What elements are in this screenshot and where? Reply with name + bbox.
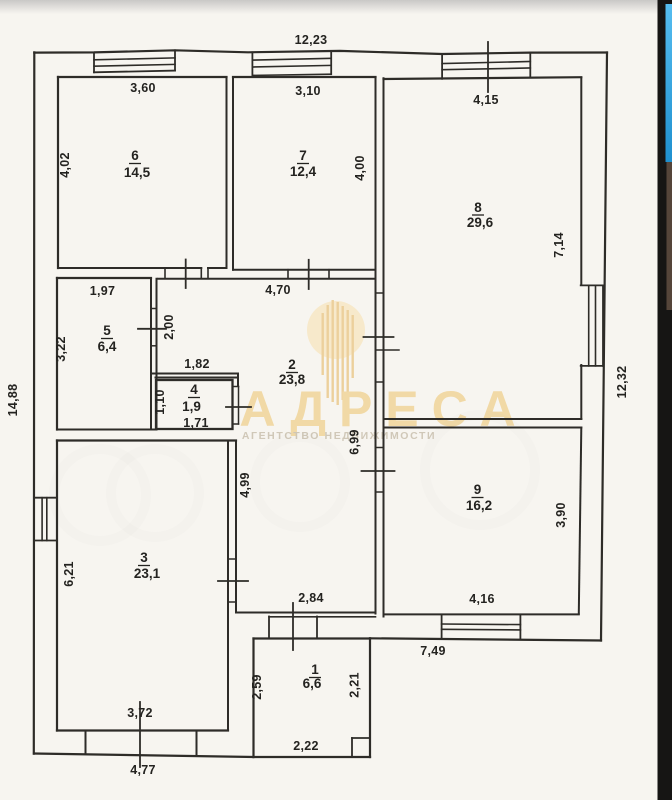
svg-text:4,99: 4,99 [238, 472, 252, 498]
svg-text:3,72: 3,72 [127, 706, 153, 720]
svg-text:2: 2 [288, 357, 296, 372]
svg-text:7,49: 7,49 [420, 644, 446, 658]
svg-text:6,99: 6,99 [348, 429, 362, 455]
svg-text:4,77: 4,77 [130, 763, 156, 777]
svg-text:14,5: 14,5 [124, 165, 151, 180]
svg-text:6,21: 6,21 [62, 561, 76, 587]
svg-text:5: 5 [103, 323, 111, 338]
svg-text:1: 1 [311, 662, 319, 677]
svg-text:2,21: 2,21 [348, 672, 362, 698]
svg-text:1,82: 1,82 [184, 357, 210, 371]
svg-text:8: 8 [474, 200, 482, 215]
svg-text:3,60: 3,60 [130, 81, 156, 95]
svg-text:4,15: 4,15 [473, 93, 499, 107]
svg-text:23,1: 23,1 [134, 566, 161, 581]
svg-text:3,90: 3,90 [554, 502, 568, 528]
svg-text:6: 6 [131, 148, 139, 163]
svg-text:6,4: 6,4 [98, 339, 117, 354]
svg-text:2,84: 2,84 [298, 591, 324, 605]
svg-text:2,00: 2,00 [162, 314, 176, 340]
svg-text:3,22: 3,22 [54, 336, 68, 362]
svg-text:1,10: 1,10 [153, 389, 167, 415]
svg-text:3: 3 [140, 550, 148, 565]
svg-text:2,59: 2,59 [250, 674, 264, 700]
svg-text:1,71: 1,71 [183, 416, 209, 430]
svg-text:12,4: 12,4 [290, 164, 317, 179]
svg-text:14,88: 14,88 [6, 384, 20, 417]
svg-text:9: 9 [474, 482, 482, 497]
svg-text:12,32: 12,32 [615, 366, 629, 399]
svg-text:2,22: 2,22 [293, 739, 319, 753]
svg-text:29,6: 29,6 [467, 215, 494, 230]
svg-text:6,6: 6,6 [303, 676, 322, 691]
svg-text:4: 4 [190, 382, 198, 397]
svg-text:4,16: 4,16 [469, 592, 495, 606]
svg-text:23,8: 23,8 [279, 372, 306, 387]
svg-text:АГЕНТСТВО НЕДВИЖИМОСТИ: АГЕНТСТВО НЕДВИЖИМОСТИ [242, 430, 436, 442]
svg-text:4,02: 4,02 [58, 152, 72, 178]
svg-text:16,2: 16,2 [466, 498, 492, 513]
svg-text:12,23: 12,23 [295, 33, 328, 47]
svg-text:7: 7 [299, 148, 307, 163]
svg-text:1,9: 1,9 [182, 399, 201, 414]
svg-text:3,10: 3,10 [295, 84, 321, 98]
svg-text:4,70: 4,70 [265, 283, 291, 297]
svg-text:4,00: 4,00 [353, 155, 367, 181]
svg-text:1,97: 1,97 [90, 284, 116, 298]
svg-text:7,14: 7,14 [552, 232, 566, 258]
